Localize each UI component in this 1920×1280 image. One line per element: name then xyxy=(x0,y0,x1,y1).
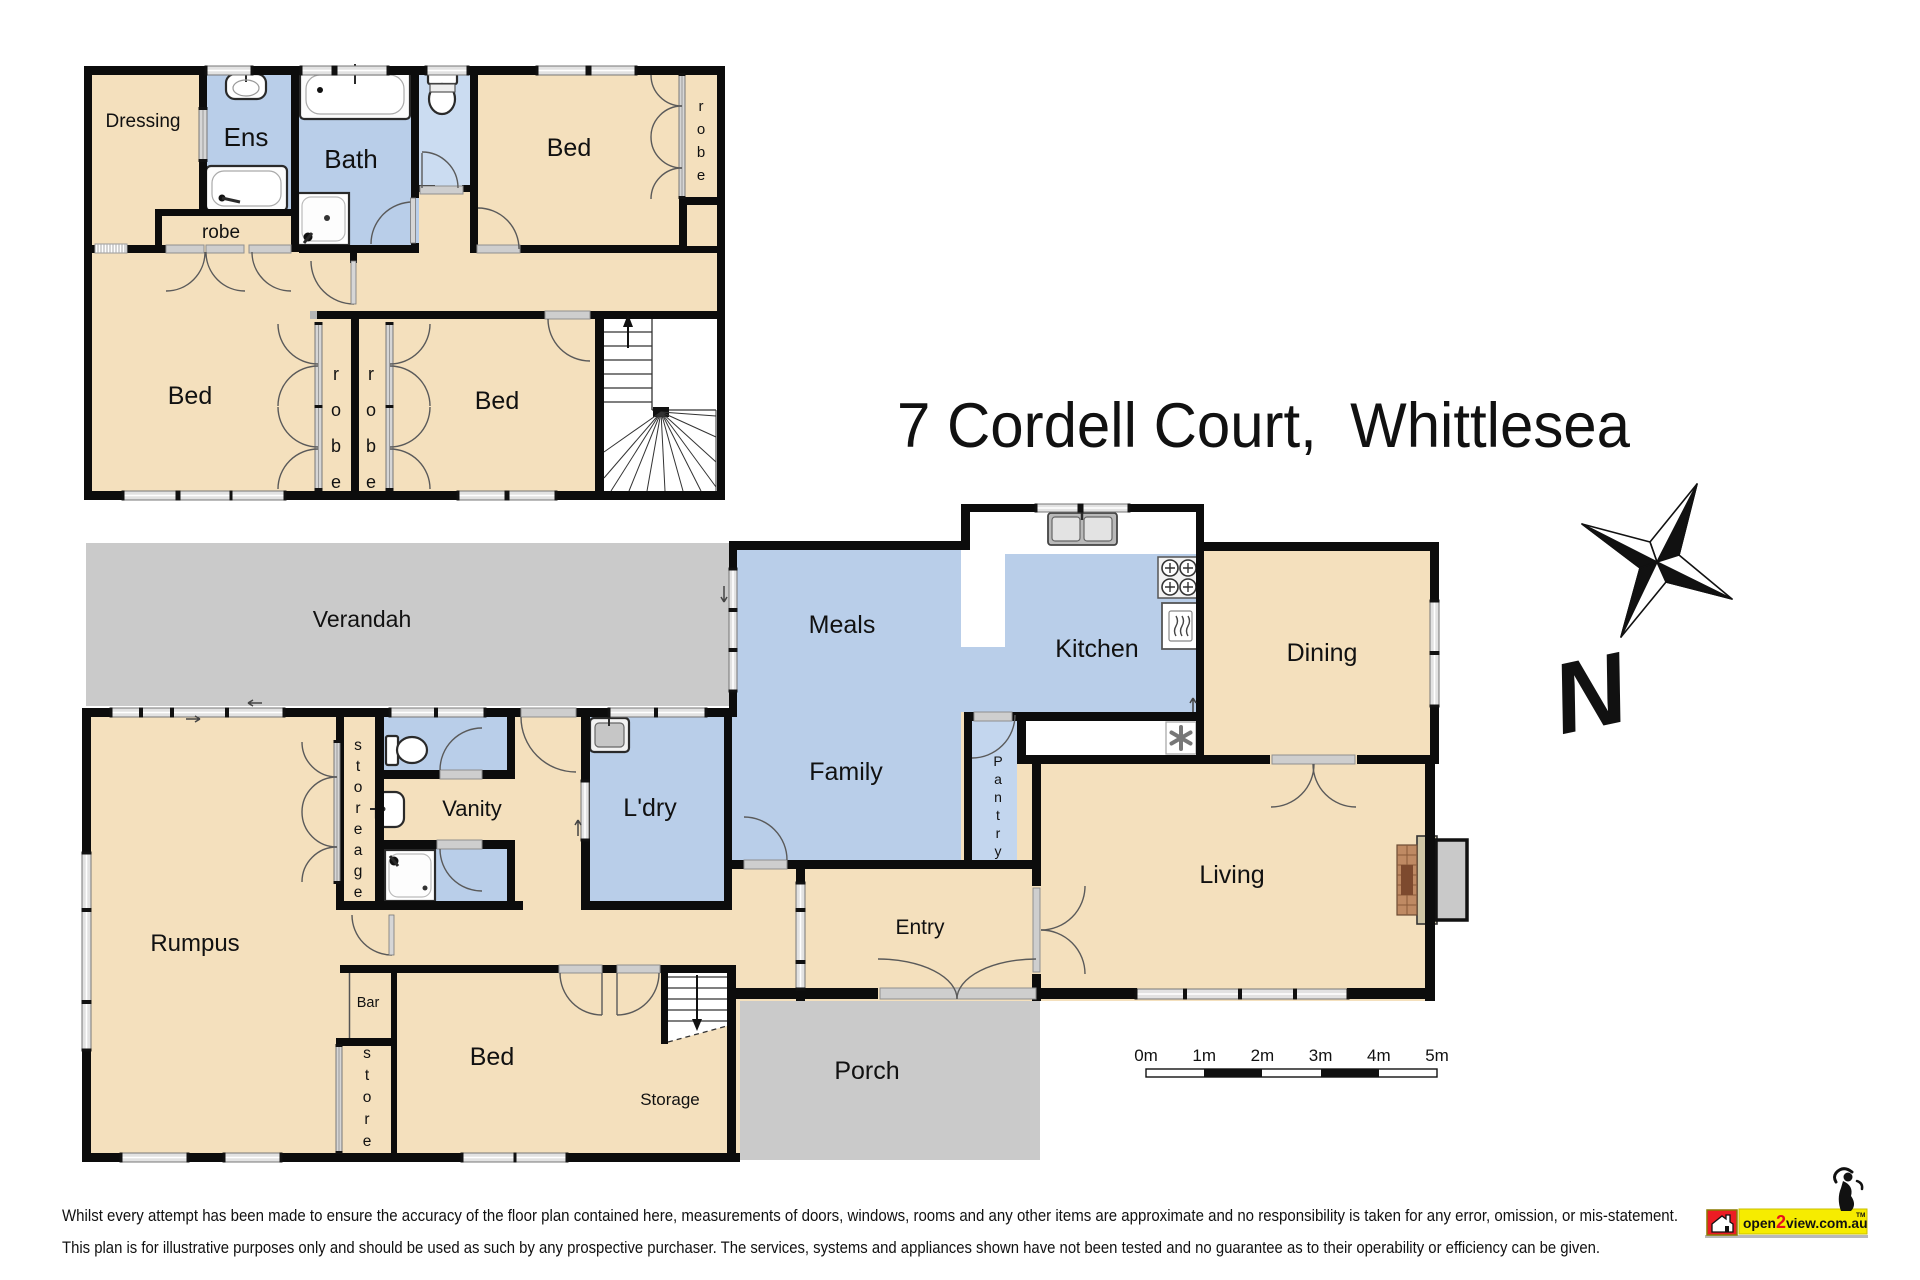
svg-text:robe: robe xyxy=(202,222,240,243)
svg-text:This plan is for illustrative: This plan is for illustrative purposes o… xyxy=(62,1238,1600,1257)
svg-text:e: e xyxy=(354,821,363,838)
svg-text:r: r xyxy=(355,800,360,817)
svg-text:t: t xyxy=(356,758,361,775)
svg-text:e: e xyxy=(366,472,376,492)
svg-text:Bar: Bar xyxy=(357,995,380,1011)
svg-text:o: o xyxy=(363,1089,372,1106)
svg-text:Vanity: Vanity xyxy=(442,796,502,821)
svg-text:2m: 2m xyxy=(1251,1046,1275,1065)
svg-text:n: n xyxy=(994,789,1002,805)
svg-text:a: a xyxy=(354,842,363,859)
svg-text:e: e xyxy=(697,167,705,184)
svg-text:r: r xyxy=(368,364,374,384)
svg-text:Bed: Bed xyxy=(547,134,591,162)
svg-text:Rumpus: Rumpus xyxy=(150,930,239,957)
svg-text:b: b xyxy=(331,436,341,456)
svg-text:o: o xyxy=(331,400,341,420)
svg-text:r: r xyxy=(699,98,704,115)
svg-text:4m: 4m xyxy=(1367,1046,1391,1065)
svg-text:Dining: Dining xyxy=(1287,639,1358,667)
svg-text:Bed: Bed xyxy=(470,1043,514,1071)
svg-text:t: t xyxy=(365,1067,370,1084)
svg-text:s: s xyxy=(363,1045,371,1062)
svg-text:P: P xyxy=(993,753,1002,769)
svg-text:Living: Living xyxy=(1199,861,1264,889)
svg-text:b: b xyxy=(697,144,705,161)
svg-text:r: r xyxy=(996,825,1001,841)
svg-text:Verandah: Verandah xyxy=(313,606,411,632)
svg-text:Bed: Bed xyxy=(168,382,212,410)
svg-text:Bed: Bed xyxy=(475,387,519,415)
svg-text:3m: 3m xyxy=(1309,1046,1333,1065)
svg-text:Bath: Bath xyxy=(324,144,378,174)
svg-text:Whilst every attempt has been: Whilst every attempt has been made to en… xyxy=(62,1206,1678,1225)
svg-text:1m: 1m xyxy=(1192,1046,1216,1065)
svg-text:s: s xyxy=(354,737,362,754)
svg-text:y: y xyxy=(995,843,1002,859)
svg-text:r: r xyxy=(333,364,339,384)
svg-text:Kitchen: Kitchen xyxy=(1055,635,1138,663)
svg-text:5m: 5m xyxy=(1425,1046,1449,1065)
svg-text:a: a xyxy=(994,771,1002,787)
svg-text:o: o xyxy=(354,779,363,796)
svg-text:Entry: Entry xyxy=(895,916,945,939)
svg-text:o: o xyxy=(366,400,376,420)
svg-text:g: g xyxy=(354,863,363,880)
svg-text:Dressing: Dressing xyxy=(106,111,181,132)
svg-text:Ens: Ens xyxy=(224,122,269,152)
svg-text:e: e xyxy=(331,472,341,492)
svg-text:TM: TM xyxy=(1856,1212,1865,1219)
svg-text:Family: Family xyxy=(809,758,883,786)
svg-text:o: o xyxy=(697,121,705,138)
svg-text:7 Cordell Court, Whittlesea: 7 Cordell Court, Whittlesea xyxy=(897,391,1631,461)
svg-text:r: r xyxy=(364,1111,369,1128)
svg-text:Meals: Meals xyxy=(809,611,876,639)
svg-text:0m: 0m xyxy=(1134,1046,1158,1065)
svg-text:e: e xyxy=(354,884,363,901)
svg-text:Storage: Storage xyxy=(640,1090,700,1109)
svg-text:e: e xyxy=(363,1133,372,1150)
svg-text:L'dry: L'dry xyxy=(623,794,677,822)
svg-text:t: t xyxy=(996,807,1000,823)
svg-text:Porch: Porch xyxy=(834,1057,899,1085)
svg-text:b: b xyxy=(366,436,376,456)
